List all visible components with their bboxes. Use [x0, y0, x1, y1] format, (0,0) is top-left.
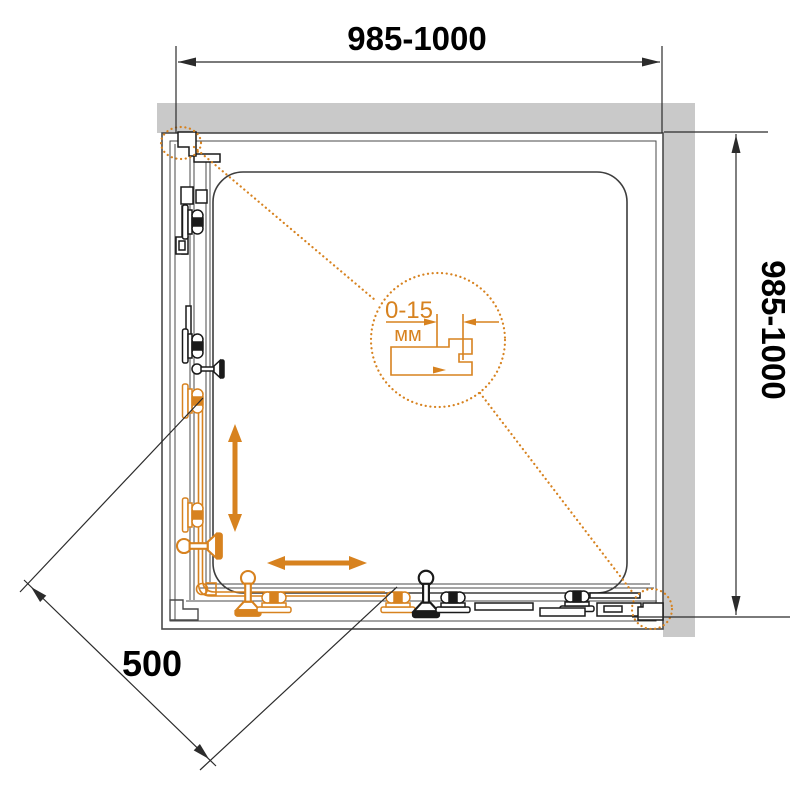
roller-icon — [436, 592, 470, 613]
dimension-right-label: 985-1000 — [755, 260, 792, 399]
roller-icon-adjusted — [257, 592, 291, 613]
top-guide-bracket — [194, 154, 220, 162]
roller-icon-adjusted — [183, 498, 204, 532]
clamp-block — [196, 190, 207, 203]
technical-drawing-page: 0-15 мм 985-1000 985-1000 500 — [0, 0, 800, 797]
shower-enclosure-plan-drawing: 0-15 мм 985-1000 985-1000 500 — [0, 0, 800, 797]
dimension-diagonal-label: 500 — [122, 643, 182, 684]
profile-bar — [540, 608, 585, 616]
enclosure-frame — [162, 133, 663, 629]
roller-icon-adjusted — [381, 592, 415, 613]
detail-unit-label: мм — [394, 324, 422, 346]
clamp-block — [181, 187, 193, 204]
dimension-top-label: 985-1000 — [347, 20, 486, 57]
profile-detail — [604, 606, 622, 612]
roller-icon — [183, 329, 204, 363]
roller-icon — [183, 205, 204, 239]
wall-top — [157, 103, 695, 133]
wall-right — [663, 103, 695, 637]
clamp-detail — [179, 241, 185, 250]
profile-bar — [475, 603, 533, 610]
profile-bar — [590, 593, 640, 598]
